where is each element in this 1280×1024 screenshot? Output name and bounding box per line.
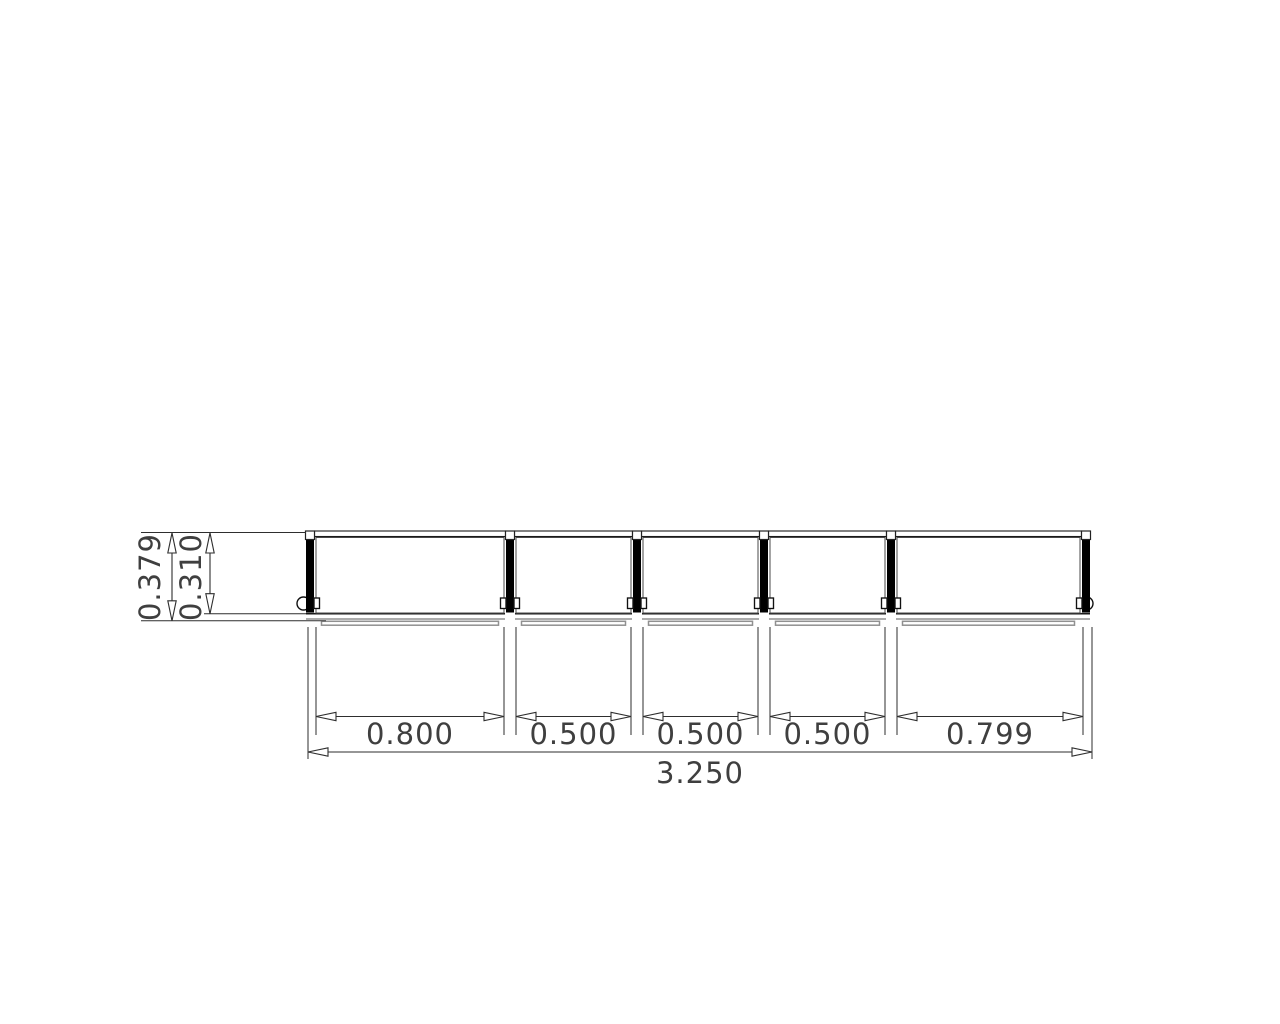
post xyxy=(887,539,895,613)
post-cap-connector xyxy=(887,531,896,540)
clamp-fitting xyxy=(1077,598,1083,609)
dimension-arrowhead-icon xyxy=(308,748,328,756)
post-cap-connector xyxy=(760,531,769,540)
clamp-fitting xyxy=(314,598,320,609)
dimension-arrowhead-icon xyxy=(316,712,336,720)
post xyxy=(1082,539,1090,613)
dimension-label: 0.799 xyxy=(946,717,1034,751)
post xyxy=(760,539,768,613)
post xyxy=(633,539,641,613)
dimension-arrowhead-icon xyxy=(897,712,917,720)
dimension-arrowhead-icon xyxy=(484,712,504,720)
post xyxy=(506,539,514,613)
dimension-label: 0.500 xyxy=(783,717,871,751)
glass-panel xyxy=(770,538,885,614)
clamp-fitting xyxy=(895,598,901,609)
base-channel xyxy=(322,621,499,625)
post-cap-connector xyxy=(633,531,642,540)
top-cap-rail xyxy=(515,531,633,537)
dimension-label: 0.500 xyxy=(529,717,617,751)
post-cap-connector xyxy=(306,531,315,540)
dimension-arrowhead-icon xyxy=(1072,748,1092,756)
base-channel xyxy=(649,621,753,625)
clamp-fitting xyxy=(514,598,520,609)
post-cap-connector xyxy=(1082,531,1091,540)
dimension-arrowhead-icon xyxy=(1063,712,1083,720)
drawing-page: 0.3790.3100.8000.5000.5000.5000.7993.250 xyxy=(0,0,1280,1024)
clamp-fitting xyxy=(628,598,634,609)
base-channel xyxy=(903,621,1075,625)
post-cap-connector xyxy=(506,531,515,540)
dimension-label: 0.310 xyxy=(174,533,208,621)
top-cap-rail xyxy=(642,531,760,537)
clamp-fitting xyxy=(882,598,888,609)
clamp-fitting xyxy=(768,598,774,609)
clamp-fitting xyxy=(501,598,507,609)
dimension-label: 0.379 xyxy=(133,533,167,621)
glass-panel xyxy=(643,538,758,614)
cad-drawing: 0.3790.3100.8000.5000.5000.5000.7993.250 xyxy=(0,0,1280,1024)
dimension-label: 0.500 xyxy=(656,717,744,751)
glass-panel xyxy=(316,538,504,614)
base-channel xyxy=(522,621,626,625)
post xyxy=(306,539,314,613)
dimension-label: 0.800 xyxy=(366,717,454,751)
dimension-label: 3.250 xyxy=(656,756,744,790)
top-cap-rail xyxy=(896,531,1082,537)
top-cap-rail xyxy=(769,531,887,537)
top-cap-rail xyxy=(315,531,506,537)
glass-panel xyxy=(897,538,1080,614)
clamp-fitting xyxy=(641,598,647,609)
clamp-fitting xyxy=(755,598,761,609)
glass-panel xyxy=(516,538,631,614)
base-channel xyxy=(776,621,880,625)
